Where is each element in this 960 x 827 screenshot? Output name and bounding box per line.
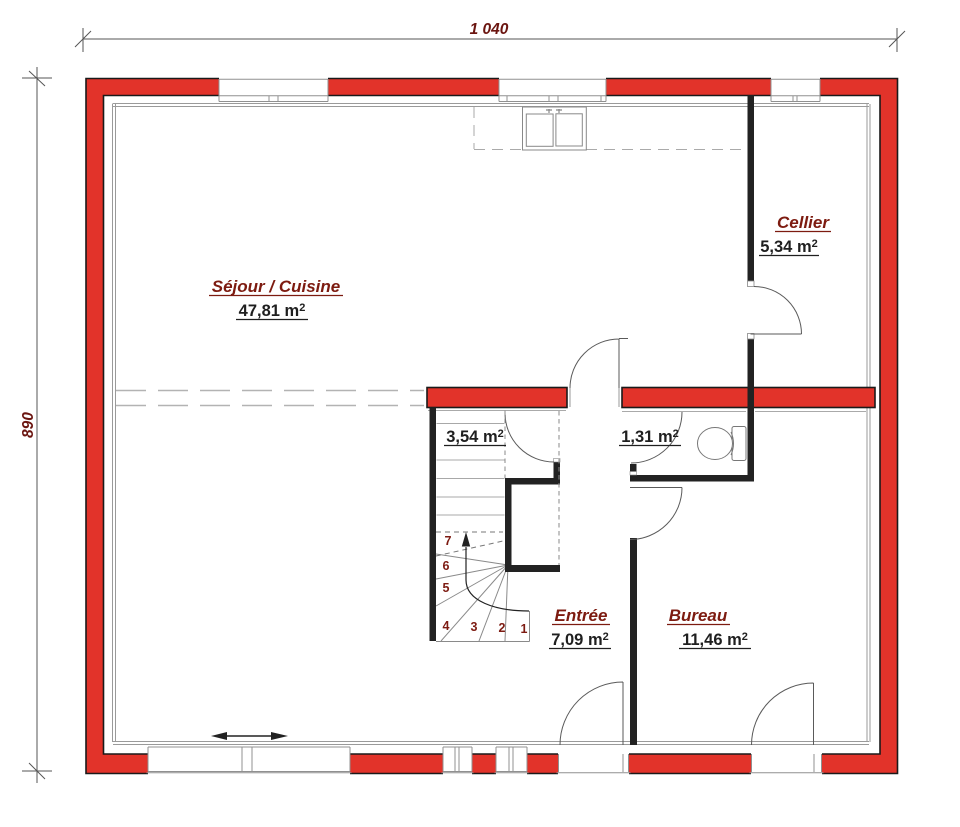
svg-text:47,81 m2: 47,81 m2: [239, 302, 306, 320]
svg-text:890: 890: [20, 412, 37, 438]
svg-text:5,34 m2: 5,34 m2: [760, 238, 818, 256]
svg-text:Séjour / Cuisine: Séjour / Cuisine: [212, 277, 340, 296]
svg-text:1,31 m2: 1,31 m2: [621, 428, 679, 446]
svg-text:6: 6: [443, 559, 450, 573]
svg-text:7: 7: [445, 534, 452, 548]
svg-text:4: 4: [443, 619, 450, 633]
svg-text:2: 2: [499, 621, 506, 635]
svg-text:3: 3: [471, 620, 478, 634]
svg-text:7,09 m2: 7,09 m2: [551, 631, 609, 649]
svg-text:1 040: 1 040: [470, 21, 509, 38]
svg-text:Cellier: Cellier: [777, 213, 830, 232]
svg-text:Bureau: Bureau: [669, 606, 728, 625]
svg-text:5: 5: [443, 581, 450, 595]
svg-text:1: 1: [521, 622, 528, 636]
svg-text:11,46 m2: 11,46 m2: [682, 631, 748, 649]
svg-text:3,54 m2: 3,54 m2: [446, 428, 504, 446]
svg-text:Entrée: Entrée: [555, 606, 608, 625]
